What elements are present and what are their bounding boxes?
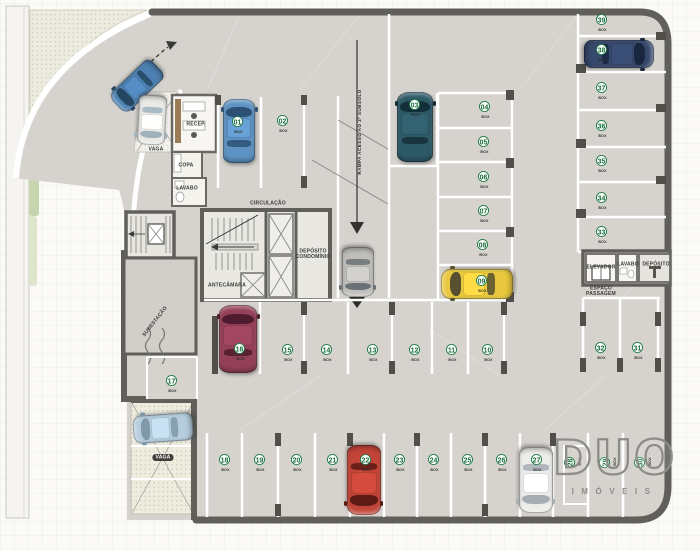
- car-windshield: [222, 314, 253, 324]
- car-mirror-right: [140, 413, 145, 416]
- left-stair: [126, 212, 174, 258]
- car-windshield: [226, 107, 252, 117]
- car-rear-window: [171, 417, 179, 438]
- car-roof: [611, 43, 633, 65]
- car-mirror-right: [340, 286, 343, 291]
- car-mirror-right: [257, 314, 260, 319]
- substation-room: [124, 258, 196, 364]
- car-mirror-right: [135, 133, 138, 138]
- car-rear-window: [487, 273, 495, 295]
- car-roof: [401, 113, 429, 135]
- car-mirror-left: [640, 38, 645, 41]
- car-rear-window: [523, 464, 548, 471]
- car-rear-window: [402, 137, 429, 145]
- car-mirror-right: [640, 68, 645, 71]
- car-roof: [346, 267, 371, 283]
- car-spot-01: [223, 99, 255, 163]
- car-mirror-left: [221, 107, 224, 112]
- car-mirror-right: [255, 107, 258, 112]
- car-windshield: [140, 130, 163, 139]
- car-roof: [141, 114, 164, 131]
- car-spot-27: [519, 447, 553, 513]
- car-windshield: [350, 495, 378, 506]
- car-rear-window: [227, 140, 251, 147]
- car-windshield: [140, 417, 151, 441]
- core-stairs-elevators: [202, 210, 330, 300]
- car-roof: [227, 118, 252, 138]
- car-roof: [351, 472, 378, 494]
- car-mirror-left: [395, 101, 398, 106]
- car-mirror-right: [517, 499, 520, 504]
- car-windshield: [450, 272, 461, 297]
- car-windshield: [634, 43, 645, 66]
- car-windshield: [345, 283, 371, 291]
- car-rear-window: [602, 44, 610, 65]
- car-roof: [463, 272, 485, 295]
- car-spot-03: [397, 92, 433, 162]
- car-mirror-right: [345, 501, 348, 506]
- car-ramp-down: [342, 247, 374, 297]
- car-mirror-left: [217, 314, 220, 319]
- car-rear-window: [346, 260, 370, 266]
- car-mirror-right: [450, 267, 455, 270]
- car-roof: [223, 325, 253, 346]
- car-windshield: [400, 101, 430, 112]
- car-spot-38: [584, 40, 654, 68]
- car-roof: [523, 473, 550, 493]
- car-rear-window: [142, 107, 163, 114]
- car-spot-16: [219, 305, 257, 373]
- garage-floor-plan: RECEP.COPALAVABOCIRCULAÇÃODEPÓSITO CONDO…: [0, 0, 700, 550]
- car-vaga-top: [137, 94, 168, 145]
- car-spot-22: [347, 445, 381, 515]
- car-mirror-right: [433, 101, 436, 106]
- car-windshield: [522, 495, 550, 505]
- rooms-right: [583, 251, 670, 285]
- car-vaga-bottom: [132, 412, 194, 444]
- car-roof: [150, 417, 170, 440]
- car-rear-window: [224, 349, 252, 356]
- car-rear-window: [351, 463, 376, 471]
- car-spot-09: [441, 269, 513, 299]
